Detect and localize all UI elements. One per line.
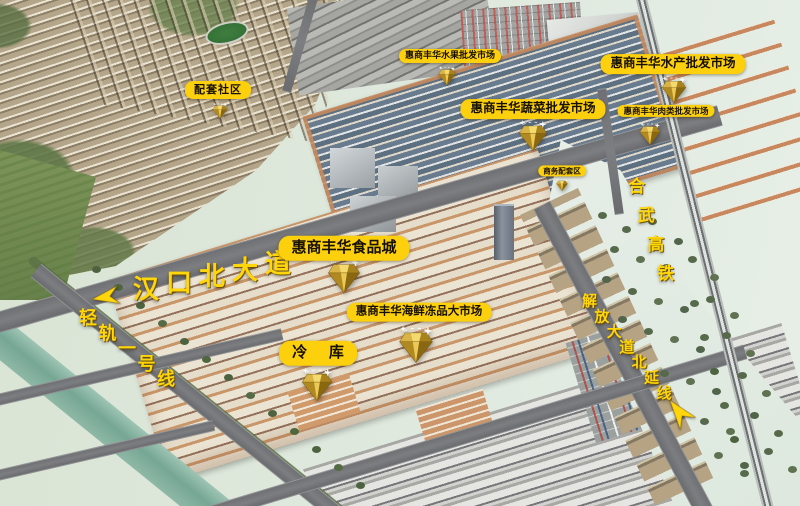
label-aquatic-market: 惠商丰华水产批发市场	[600, 54, 745, 74]
glass-building	[378, 166, 418, 200]
diamond-icon-aquatic-market	[662, 75, 687, 105]
warehouse-rows-southeast	[303, 323, 800, 506]
gray-industrial-campus	[287, 0, 497, 95]
arrow-icon-hankou-avenue	[91, 286, 121, 308]
diamond-icon-seafood-frozen-market	[399, 325, 434, 366]
sports-field	[203, 17, 251, 49]
label-business-zone: 商务配套区	[538, 165, 586, 176]
residential-highrise-towers	[40, 0, 360, 150]
white-exhibition-hall	[547, 12, 642, 54]
orange-market-rows-northeast	[647, 11, 800, 231]
label-community: 配套社区	[185, 81, 251, 99]
tower-row-jiefang-avenue	[520, 188, 713, 505]
label-vegetable-market: 惠商丰华蔬菜批发市场	[460, 99, 605, 119]
tree-scatter	[598, 212, 607, 219]
glass-building	[330, 148, 375, 188]
diamond-icon-meat-market	[640, 122, 661, 147]
parking-lot-east	[566, 305, 721, 442]
greenery-park	[0, 150, 120, 300]
diamond-icon-fruit-market	[438, 66, 456, 87]
tree-row	[92, 266, 101, 273]
open-field-east	[540, 140, 800, 506]
diamond-icon-business-zone	[556, 178, 568, 192]
road-south	[188, 345, 748, 506]
minor-road	[282, 0, 319, 93]
label-meat-market: 惠商丰华肉类批发市场	[617, 105, 714, 117]
label-cold-storage: 冷 库	[279, 341, 357, 366]
office-tower	[494, 206, 514, 260]
aerial-masterplan-rendering: 汉口北大道 轻轨一号线 合武高铁 解放大道北延线 配套社区 惠商丰华水果批发市场…	[0, 0, 800, 506]
diamond-icon-cold-storage	[302, 367, 333, 404]
label-fruit-market: 惠商丰华水果批发市场	[399, 49, 501, 63]
label-seafood-frozen-market: 惠商丰华海鲜冻品大市场	[347, 303, 492, 322]
label-food-city: 惠商丰华食品城	[278, 236, 409, 261]
cross-road	[0, 420, 215, 485]
diamond-icon-vegetable-market	[519, 119, 548, 153]
diamond-icon-food-city	[328, 257, 361, 296]
glass-building	[350, 196, 396, 232]
river	[0, 294, 348, 506]
tree-row	[690, 300, 699, 307]
diamond-icon-community	[213, 102, 228, 120]
orange-hall	[415, 389, 494, 450]
